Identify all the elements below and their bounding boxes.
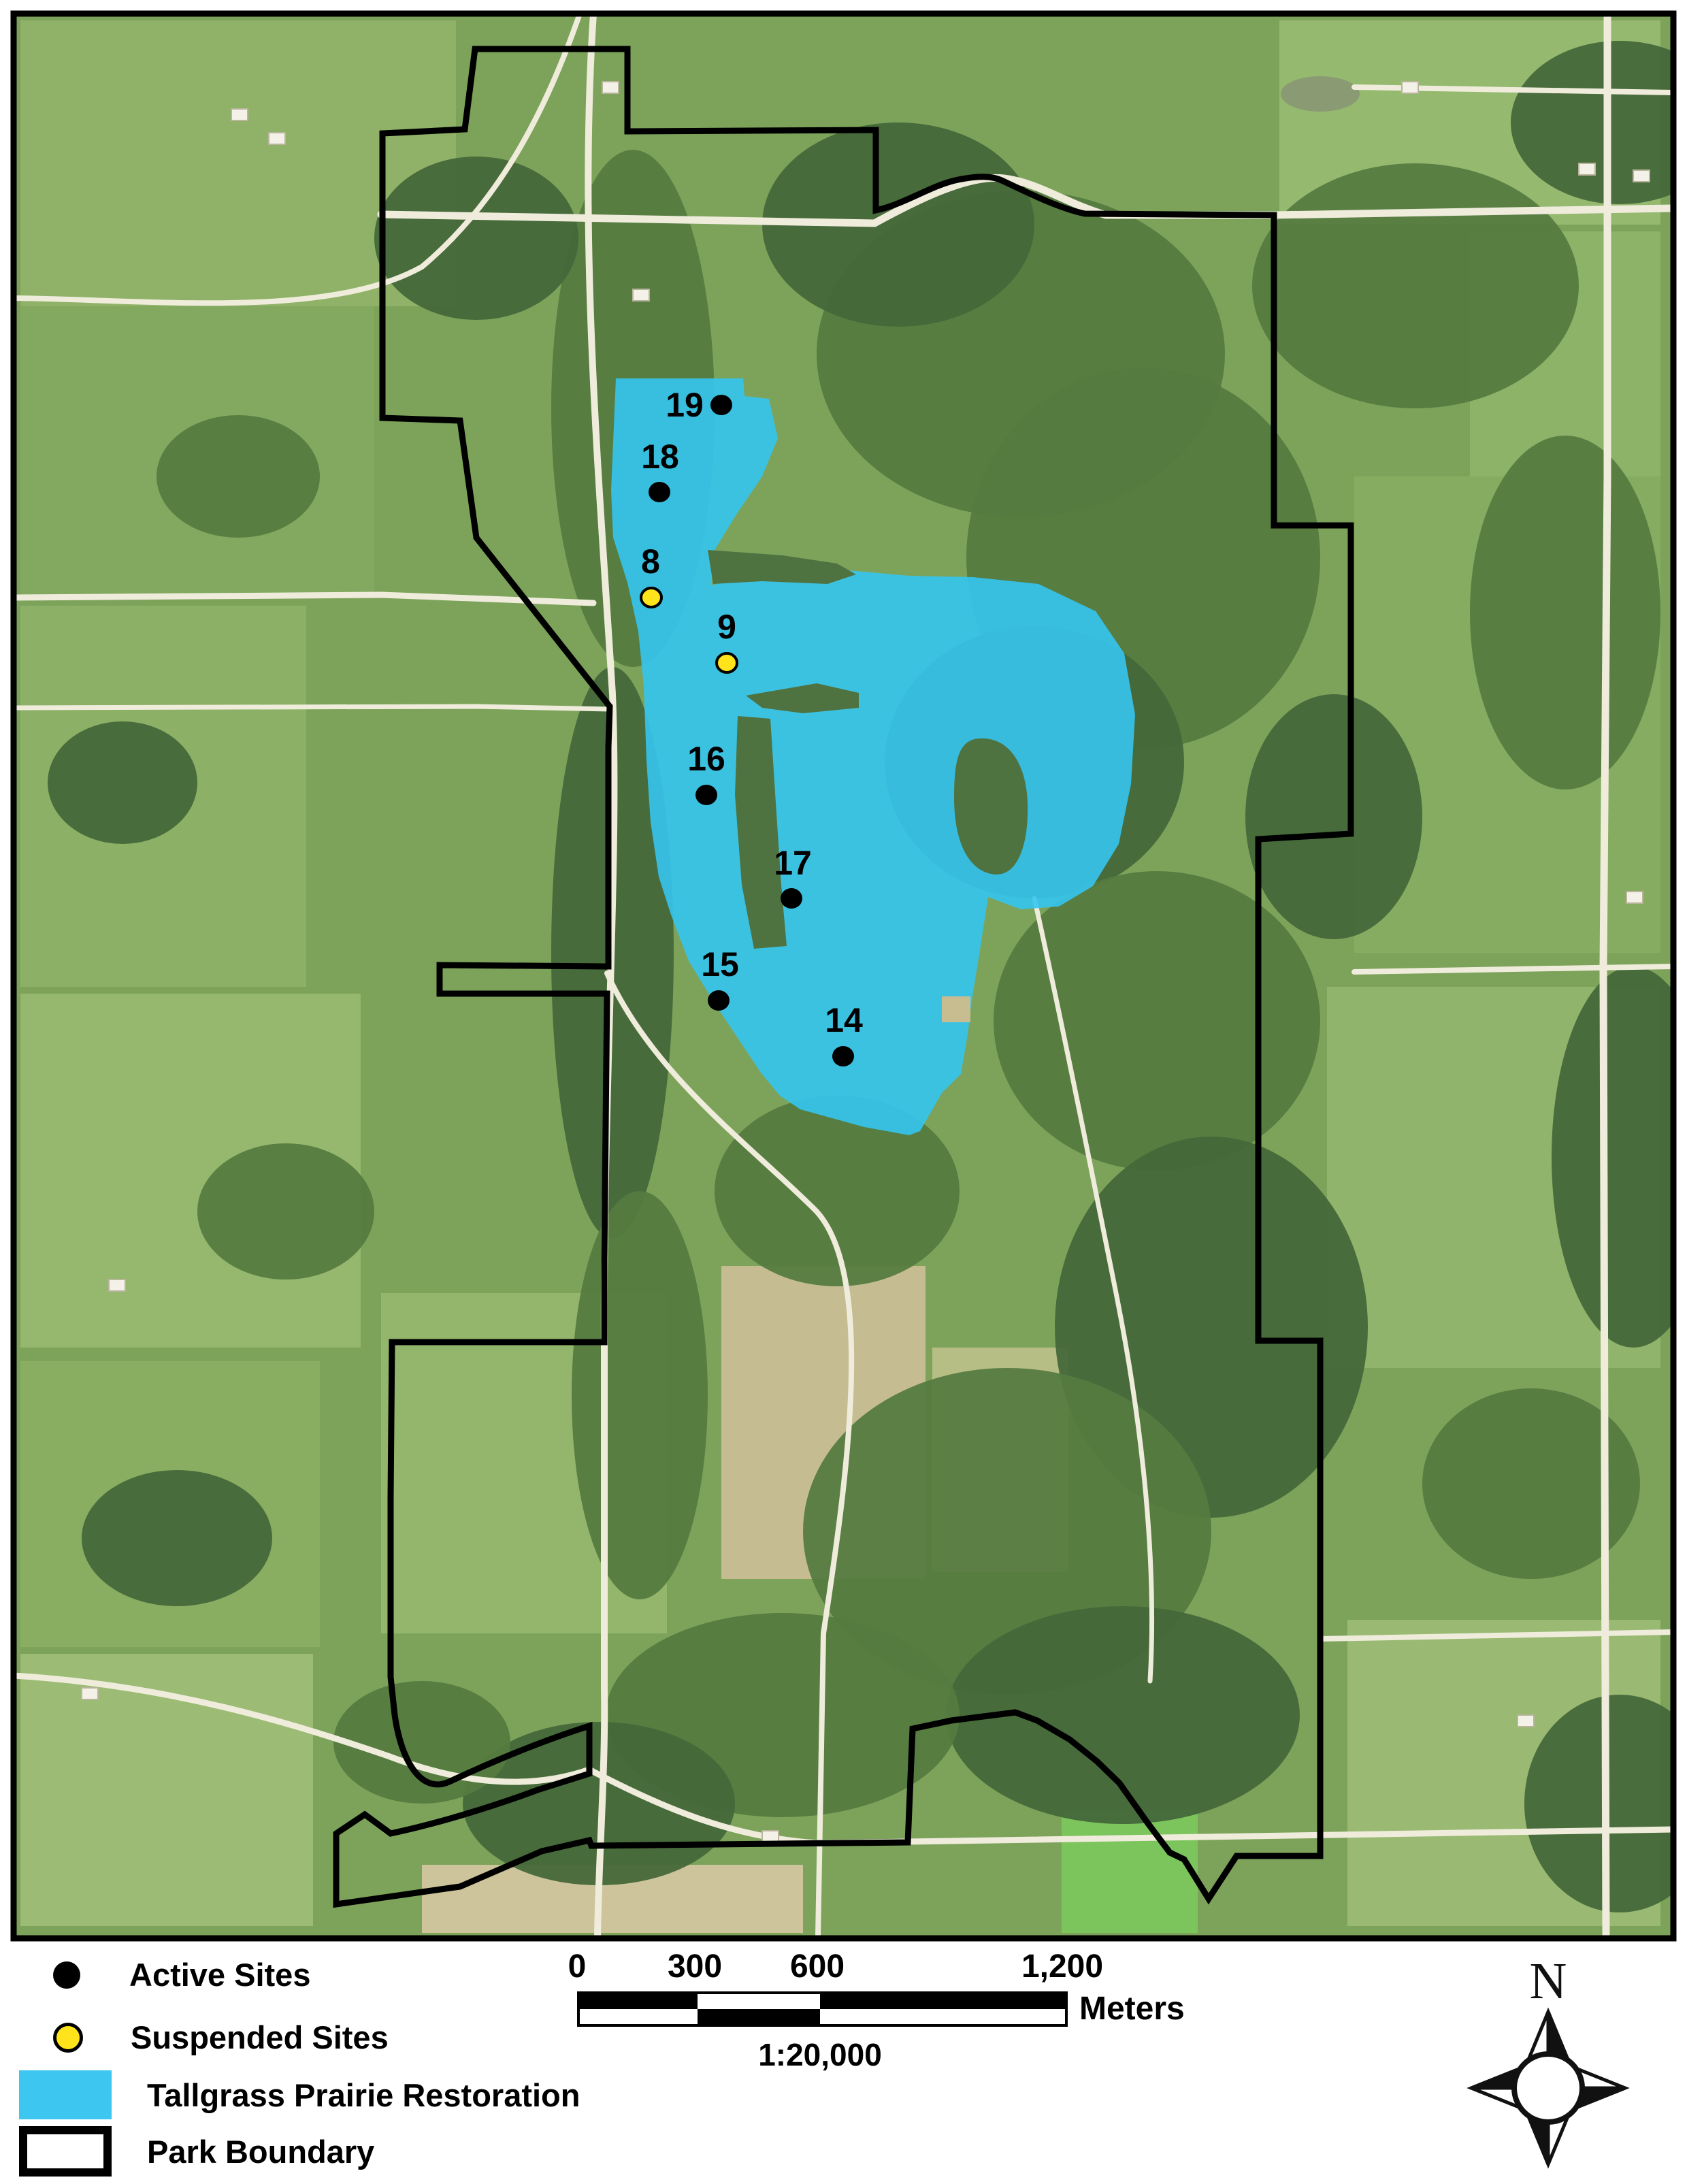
site-label-15: 15 xyxy=(701,945,739,983)
road xyxy=(1603,14,1607,1937)
site-label-16: 16 xyxy=(687,740,725,778)
prairie-swatch-icon xyxy=(19,2070,112,2119)
building xyxy=(1518,1715,1534,1727)
legend-item-boundary: Park Boundary xyxy=(19,2126,374,2177)
forest-patch xyxy=(1245,694,1422,939)
boundary-swatch-icon xyxy=(19,2126,112,2177)
scale-tick-1200: 1,200 xyxy=(1021,1948,1103,1985)
forest-patch xyxy=(1252,163,1579,408)
park-map[interactable]: 19188916171514 xyxy=(0,0,1687,2184)
aerial-imagery: 19188916171514 xyxy=(14,14,1687,1938)
legend-item-suspended-sites: Suspended Sites xyxy=(53,2019,389,2056)
forest-patch xyxy=(157,415,320,538)
forest-patch xyxy=(572,1191,708,1599)
site-label-8: 8 xyxy=(641,542,660,581)
active-site-marker-16[interactable] xyxy=(695,785,717,805)
building xyxy=(633,289,649,301)
legend-label-active: Active Sites xyxy=(129,1956,310,1993)
forest-patch xyxy=(994,871,1320,1171)
active-site-icon xyxy=(53,1961,80,1989)
field-patch xyxy=(1062,1810,1198,1933)
suspended-site-marker-8[interactable] xyxy=(641,588,661,607)
building xyxy=(1633,170,1650,182)
pond xyxy=(1281,76,1360,112)
forest-patch xyxy=(82,1470,272,1606)
map-page: { "map": { "frame": {"x": 20, "y": 20, "… xyxy=(0,0,1687,2184)
site-label-18: 18 xyxy=(641,438,679,476)
legend-label-suspended: Suspended Sites xyxy=(131,2019,389,2056)
legend-item-prairie: Tallgrass Prairie Restoration xyxy=(19,2070,580,2119)
building xyxy=(109,1280,125,1291)
active-site-marker-17[interactable] xyxy=(781,888,802,909)
building xyxy=(82,1688,98,1699)
forest-patch xyxy=(333,1681,510,1804)
active-site-marker-14[interactable] xyxy=(832,1046,854,1066)
building xyxy=(762,1831,779,1842)
scale-bar-graphic xyxy=(577,1991,1068,2027)
site-8[interactable]: 8 xyxy=(641,542,661,607)
suspended-site-icon xyxy=(53,2023,83,2053)
building xyxy=(1626,892,1643,903)
scale-tick-600: 600 xyxy=(790,1948,845,1985)
scale-ratio-label: 1:20,000 xyxy=(758,2036,882,2073)
forest-patch xyxy=(1470,436,1660,789)
building xyxy=(602,82,619,93)
suspended-site-marker-9[interactable] xyxy=(717,653,737,672)
building xyxy=(231,109,248,120)
north-label: N xyxy=(1530,1952,1567,2011)
site-label-14: 14 xyxy=(825,1001,863,1039)
building xyxy=(1402,82,1418,93)
building xyxy=(1579,163,1595,175)
building xyxy=(269,133,285,144)
forest-patch xyxy=(48,721,197,844)
legend-label-boundary: Park Boundary xyxy=(147,2133,374,2170)
scale-tick-0: 0 xyxy=(568,1948,587,1985)
legend-item-active-sites: Active Sites xyxy=(53,1956,310,1993)
forest-patch xyxy=(197,1143,374,1280)
road xyxy=(14,706,609,709)
site-label-9: 9 xyxy=(717,608,736,646)
site-label-19: 19 xyxy=(666,386,704,424)
active-site-marker-19[interactable] xyxy=(710,395,732,415)
inholding-patch xyxy=(942,996,970,1022)
north-arrow: N xyxy=(1443,1952,1654,2177)
site-label-17: 17 xyxy=(774,844,812,882)
scale-tick-300: 300 xyxy=(668,1948,722,1985)
active-site-marker-15[interactable] xyxy=(708,990,730,1011)
active-site-marker-18[interactable] xyxy=(649,482,670,502)
scale-unit-label: Meters xyxy=(1079,1990,1185,2027)
site-9[interactable]: 9 xyxy=(717,608,737,672)
legend-label-prairie: Tallgrass Prairie Restoration xyxy=(147,2076,580,2114)
forest-patch xyxy=(374,157,578,320)
